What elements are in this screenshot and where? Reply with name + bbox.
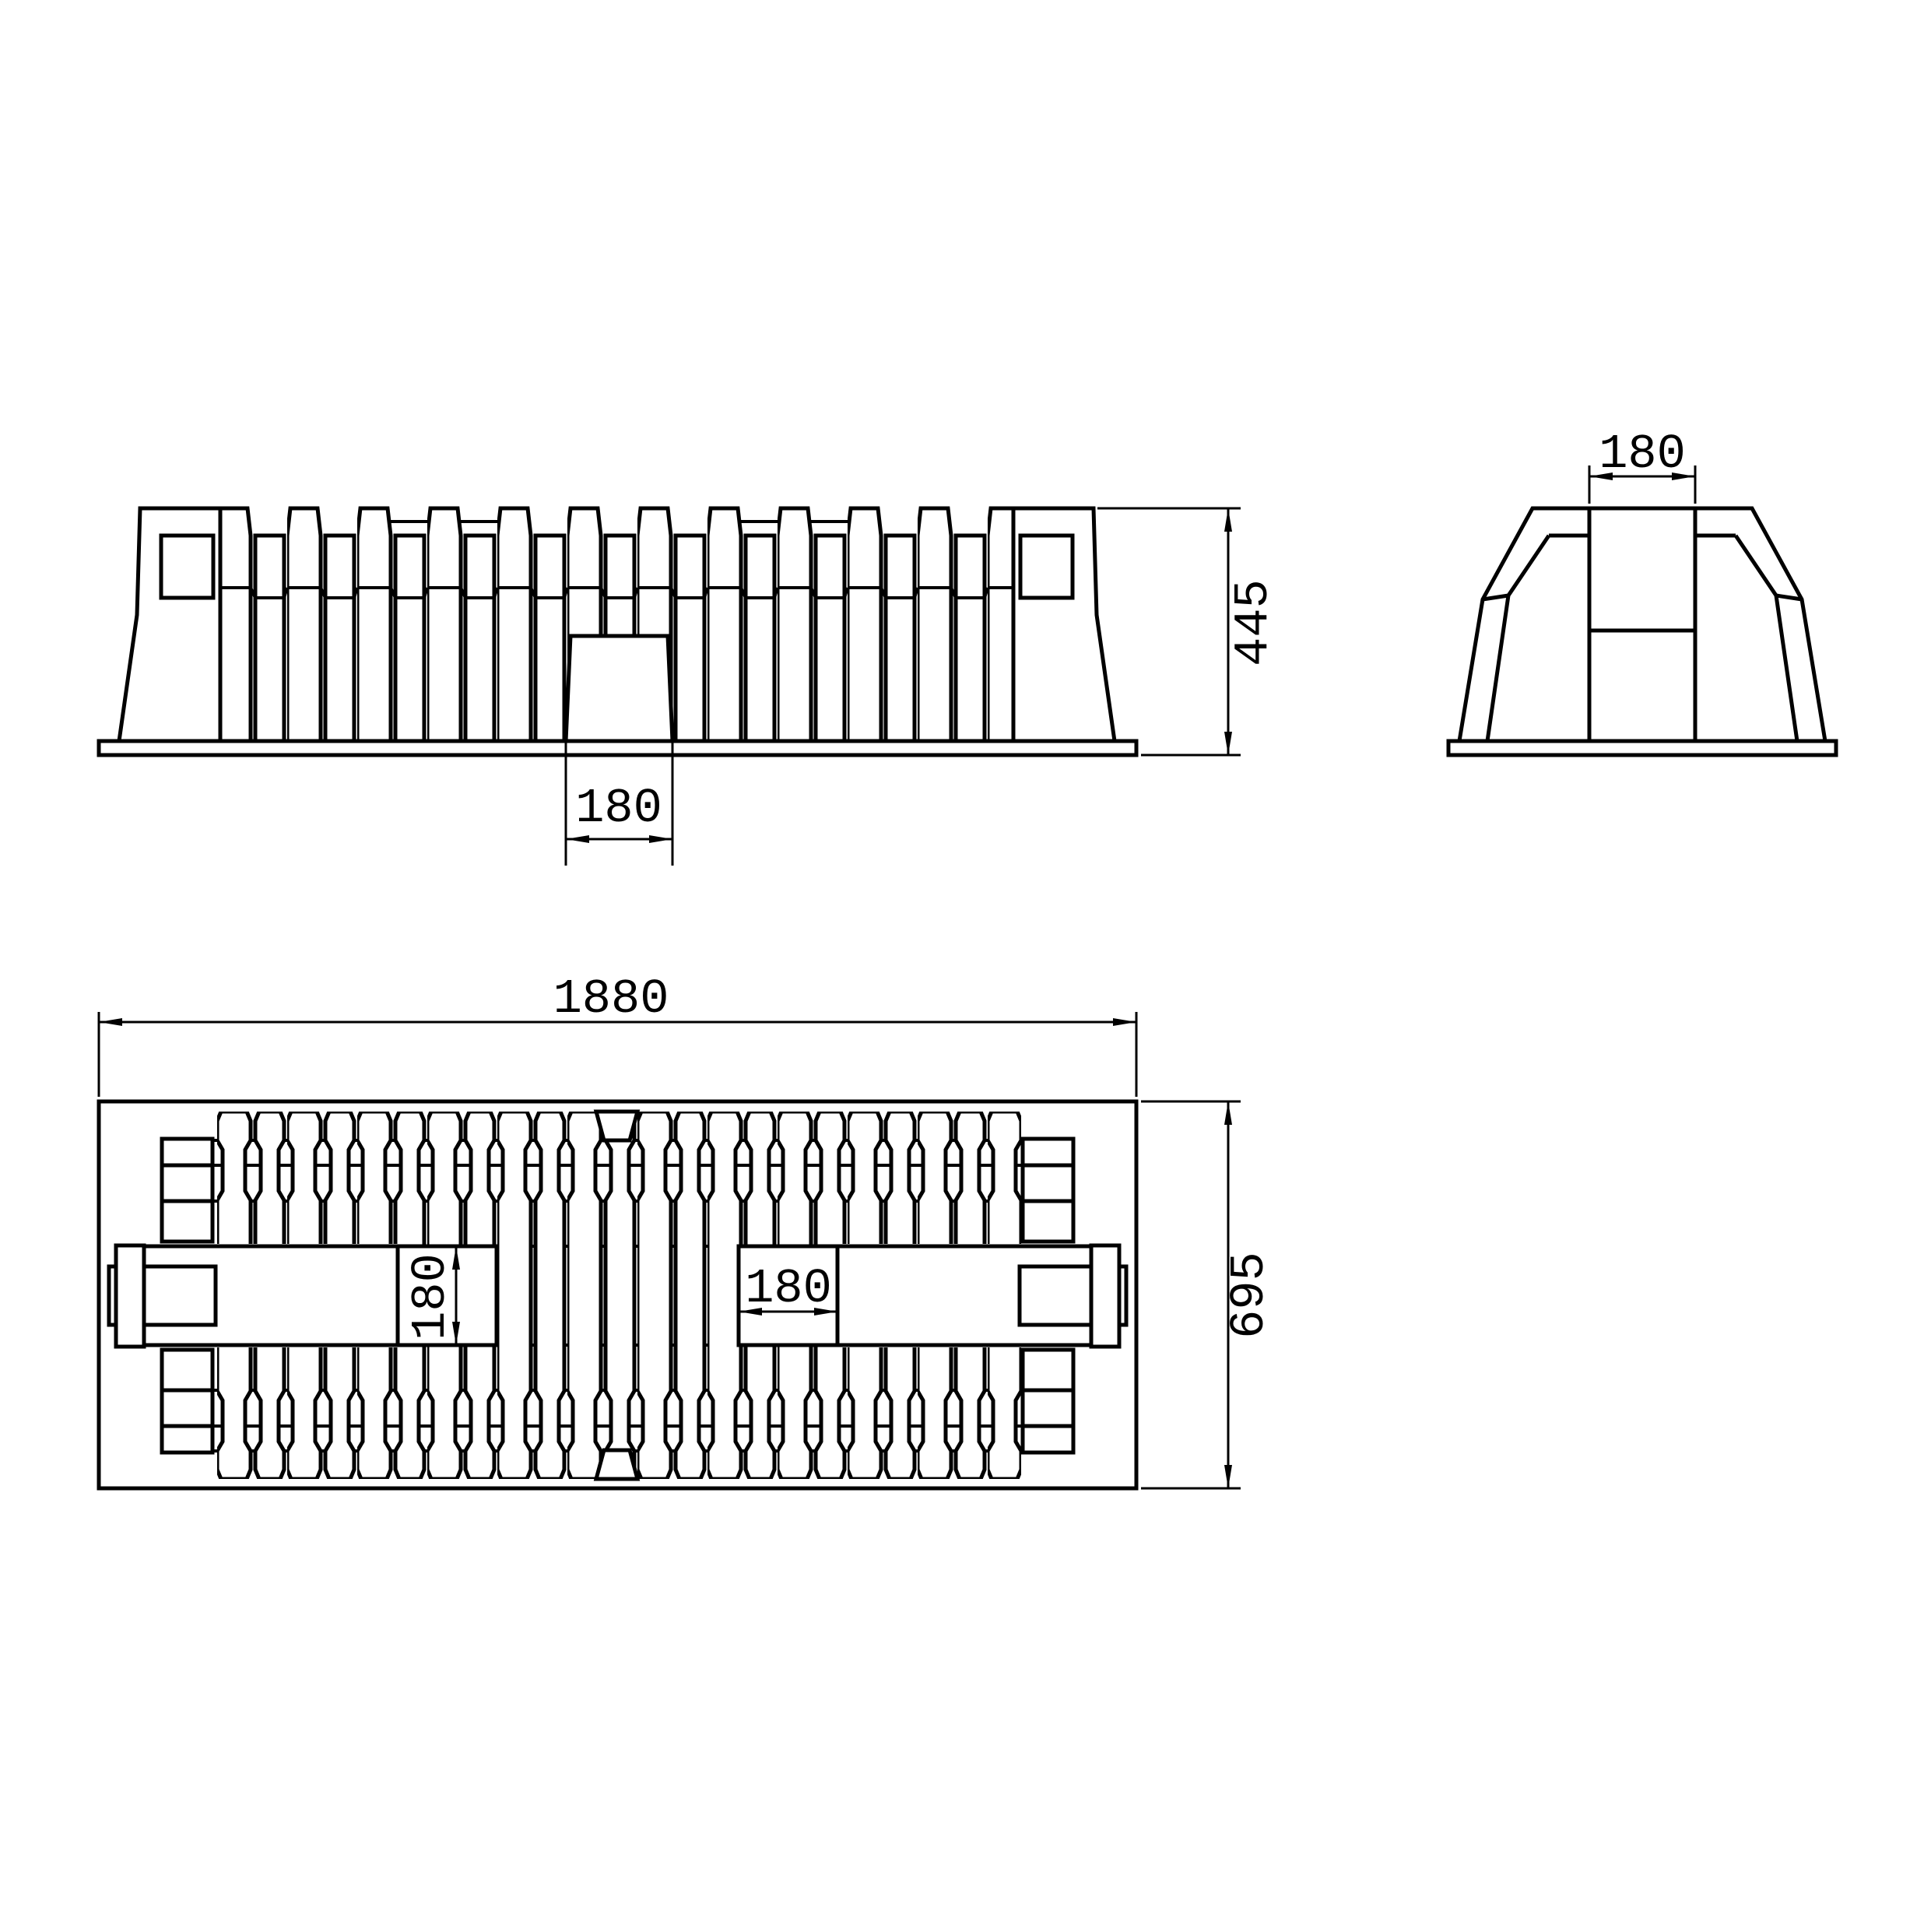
front-right-end-wall [1013,508,1115,741]
dim-180-end-label: 180 [1599,427,1686,482]
dim-1880: 1880 [99,971,1136,1097]
dim-180-plan-vertical-label: 180 [403,1253,458,1340]
dim-180-front-label: 180 [575,781,662,836]
plan-bottom-center-notch [596,1450,637,1479]
front-view: 445 180 [99,504,1281,866]
drawing-sheet: 445 180 180 [0,0,1931,1932]
end-facet-joints [1483,595,1802,599]
end-outer-profile [1459,508,1825,741]
end-inner-wall-left [1487,536,1549,741]
front-central-channel [566,636,672,741]
end-base-plate [1448,741,1836,755]
end-central-channel [1589,508,1695,741]
dim-180-plan-vertical: 180 [403,1246,460,1345]
plan-view: 1880 695 180 180 [99,971,1277,1488]
plan-top-center-notch [596,1112,637,1140]
dim-445-label: 445 [1226,579,1281,666]
dim-695-label: 695 [1222,1252,1277,1339]
end-view: 180 [1448,427,1836,755]
front-base-plate [99,741,1136,755]
front-left-end-wall [119,508,220,741]
dim-180-plan-horizontal: 180 [739,1261,837,1316]
engineering-drawing: 445 180 180 [0,0,1931,1932]
end-inner-wall-right [1736,536,1797,741]
dim-180-plan-horizontal-label: 180 [745,1261,832,1316]
dim-695: 695 [1141,1101,1277,1488]
dim-445: 445 [1097,508,1281,755]
dim-1880-label: 1880 [553,971,669,1027]
dim-180-front: 180 [566,741,672,866]
dim-180-end: 180 [1589,427,1695,504]
